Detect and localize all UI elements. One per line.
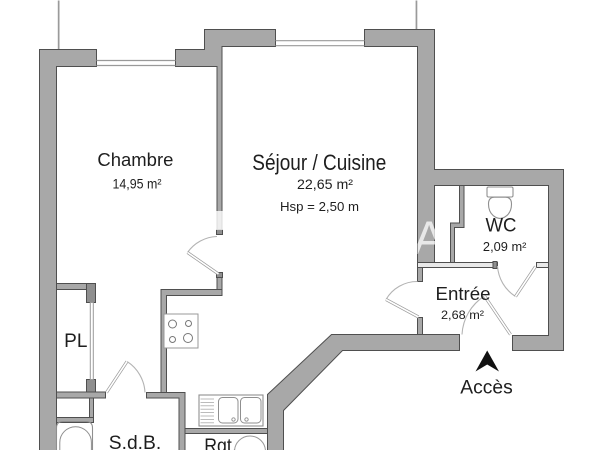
svg-text:Chambre: Chambre: [97, 149, 173, 170]
svg-text:Séjour / Cuisine: Séjour / Cuisine: [252, 150, 386, 175]
svg-text:WC: WC: [486, 215, 517, 237]
svg-text:Hsp = 2,50 m: Hsp = 2,50 m: [280, 199, 359, 214]
svg-text:2,68 m²: 2,68 m²: [441, 308, 484, 322]
svg-text:Accès: Accès: [460, 378, 513, 399]
svg-text:PL: PL: [64, 331, 87, 352]
svg-text:Rgt.: Rgt.: [204, 435, 237, 450]
svg-text:Entrée: Entrée: [436, 284, 491, 304]
svg-text:2,09 m²: 2,09 m²: [483, 240, 527, 254]
svg-text:S.d.B.: S.d.B.: [109, 432, 162, 450]
svg-text:14,95 m²: 14,95 m²: [113, 176, 162, 191]
svg-text:22,65 m²: 22,65 m²: [297, 177, 354, 192]
